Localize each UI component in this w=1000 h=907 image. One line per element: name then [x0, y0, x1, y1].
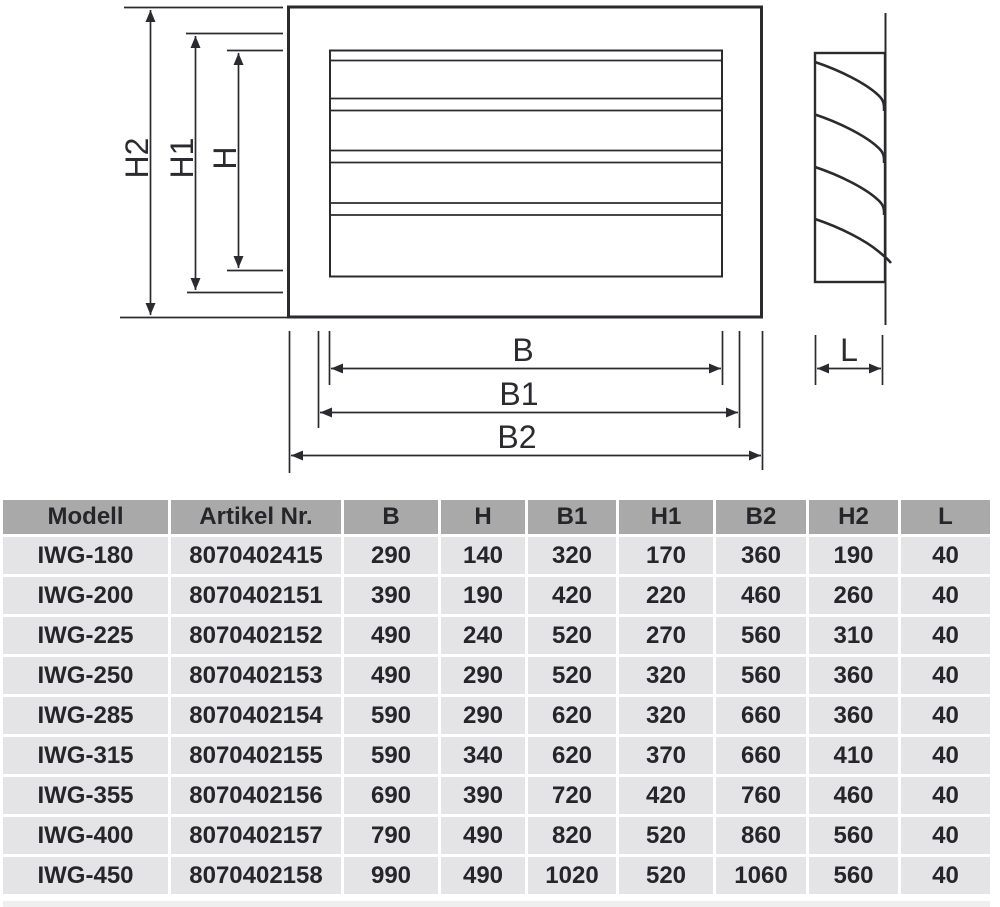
dimension-value-cell: 520: [528, 657, 616, 694]
col-header-l: L: [901, 500, 990, 534]
artikel-nr-cell: 8070402157: [171, 817, 341, 854]
cutoff-next-row: [3, 901, 990, 907]
dimension-value-cell: 390: [344, 577, 438, 614]
artikel-nr-cell: 8070402156: [171, 777, 341, 814]
label-h2: H2: [119, 138, 155, 179]
dimension-value-cell: 360: [716, 537, 806, 574]
col-header-b: B: [344, 500, 438, 534]
dimension-value-cell: 190: [441, 577, 525, 614]
dimension-value-cell: 40: [901, 697, 990, 734]
dimension-value-cell: 170: [619, 537, 713, 574]
dimension-value-cell: 340: [441, 737, 525, 774]
dimension-value-cell: 860: [716, 817, 806, 854]
dimension-value-cell: 990: [344, 857, 438, 894]
dimension-value-cell: 40: [901, 617, 990, 654]
dimension-value-cell: 620: [528, 697, 616, 734]
table-row: IWG-355807040215669039072042076046040: [3, 777, 990, 814]
side-view: [815, 13, 891, 325]
artikel-nr-cell: 8070402152: [171, 617, 341, 654]
dimension-value-cell: 40: [901, 577, 990, 614]
table-row: IWG-400807040215779049082052086056040: [3, 817, 990, 854]
dimension-value-cell: 720: [528, 777, 616, 814]
col-header-h2: H2: [809, 500, 898, 534]
model-cell: IWG-200: [3, 577, 168, 614]
model-cell: IWG-450: [3, 857, 168, 894]
dimension-value-cell: 290: [441, 657, 525, 694]
artikel-nr-cell: 8070402155: [171, 737, 341, 774]
dimension-value-cell: 270: [619, 617, 713, 654]
dimension-value-cell: 590: [344, 697, 438, 734]
table-row: IWG-200807040215139019042022046026040: [3, 577, 990, 614]
dimension-value-cell: 370: [619, 737, 713, 774]
dimension-value-cell: 240: [441, 617, 525, 654]
louver-slats: [330, 61, 722, 216]
artikel-nr-cell: 8070402151: [171, 577, 341, 614]
model-cell: IWG-355: [3, 777, 168, 814]
label-h1: H1: [164, 138, 200, 179]
dimension-value-cell: 490: [441, 817, 525, 854]
table-row: IWG-225807040215249024052027056031040: [3, 617, 990, 654]
dimensions-table-body: IWG-180807040241529014032017036019040IWG…: [3, 537, 990, 894]
dimension-value-cell: 360: [809, 657, 898, 694]
dimension-value-cell: 290: [441, 697, 525, 734]
dimension-value-cell: 220: [619, 577, 713, 614]
dimension-value-cell: 420: [619, 777, 713, 814]
dimension-value-cell: 190: [809, 537, 898, 574]
table-row: IWG-45080704021589904901020520106056040: [3, 857, 990, 894]
dimension-value-cell: 40: [901, 737, 990, 774]
artikel-nr-cell: 8070402153: [171, 657, 341, 694]
dimension-value-cell: 460: [716, 577, 806, 614]
table-row: IWG-250807040215349029052032056036040: [3, 657, 990, 694]
dimension-value-cell: 40: [901, 857, 990, 894]
louver-area: [330, 51, 722, 277]
dimension-value-cell: 1020: [528, 857, 616, 894]
dimension-value-cell: 560: [809, 857, 898, 894]
dimension-value-cell: 40: [901, 817, 990, 854]
dimension-value-cell: 410: [809, 737, 898, 774]
dimension-value-cell: 790: [344, 817, 438, 854]
col-header-h: H: [441, 500, 525, 534]
dimension-value-cell: 460: [809, 777, 898, 814]
dimension-value-cell: 490: [344, 617, 438, 654]
model-cell: IWG-285: [3, 697, 168, 734]
col-header-b2: B2: [716, 500, 806, 534]
dimension-value-cell: 140: [441, 537, 525, 574]
dimension-value-cell: 660: [716, 737, 806, 774]
col-header-b1: B1: [528, 500, 616, 534]
label-b1: B1: [499, 376, 538, 412]
table-header-row: Modell Artikel Nr. B H B1 H1 B2 H2 L: [3, 500, 990, 534]
label-b: B: [512, 332, 533, 368]
artikel-nr-cell: 8070402415: [171, 537, 341, 574]
dimension-value-cell: 560: [809, 817, 898, 854]
dimension-value-cell: 590: [344, 737, 438, 774]
label-b2: B2: [497, 419, 536, 455]
dimension-value-cell: 360: [809, 697, 898, 734]
model-cell: IWG-180: [3, 537, 168, 574]
table-row: IWG-315807040215559034062037066041040: [3, 737, 990, 774]
dimension-value-cell: 290: [344, 537, 438, 574]
dimension-value-cell: 760: [716, 777, 806, 814]
model-cell: IWG-250: [3, 657, 168, 694]
dimension-value-cell: 560: [716, 617, 806, 654]
dimension-value-cell: 320: [619, 657, 713, 694]
model-cell: IWG-400: [3, 817, 168, 854]
dimension-value-cell: 560: [716, 657, 806, 694]
dimension-value-cell: 820: [528, 817, 616, 854]
dimension-value-cell: 690: [344, 777, 438, 814]
dimension-value-cell: 310: [809, 617, 898, 654]
col-header-modell: Modell: [3, 500, 168, 534]
label-l: L: [840, 332, 858, 368]
dimension-value-cell: 40: [901, 537, 990, 574]
louver-profiles: [815, 62, 891, 263]
dimension-value-cell: 320: [619, 697, 713, 734]
dimension-value-cell: 490: [441, 857, 525, 894]
label-h: H: [207, 146, 243, 169]
grille-technical-drawing: H2 H1 H B B1 B2 L: [0, 0, 1000, 497]
dimension-value-cell: 660: [716, 697, 806, 734]
dimension-value-cell: 620: [528, 737, 616, 774]
dimension-value-cell: 520: [619, 857, 713, 894]
artikel-nr-cell: 8070402158: [171, 857, 341, 894]
model-cell: IWG-315: [3, 737, 168, 774]
dimension-value-cell: 320: [528, 537, 616, 574]
dimensions-table: Modell Artikel Nr. B H B1 H1 B2 H2 L IWG…: [0, 497, 993, 897]
dimension-value-cell: 40: [901, 657, 990, 694]
col-header-artikel-nr: Artikel Nr.: [171, 500, 341, 534]
front-view: [289, 7, 762, 317]
dimension-value-cell: 520: [528, 617, 616, 654]
col-header-h1: H1: [619, 500, 713, 534]
dimension-value-cell: 490: [344, 657, 438, 694]
artikel-nr-cell: 8070402154: [171, 697, 341, 734]
table-row: IWG-285807040215459029062032066036040: [3, 697, 990, 734]
dimension-value-cell: 390: [441, 777, 525, 814]
dimension-value-cell: 420: [528, 577, 616, 614]
datasheet-page: { "diagram": { "line_color": "#2b2b2f", …: [0, 0, 1000, 907]
dimension-value-cell: 520: [619, 817, 713, 854]
dimension-value-cell: 40: [901, 777, 990, 814]
model-cell: IWG-225: [3, 617, 168, 654]
dimension-value-cell: 260: [809, 577, 898, 614]
dimension-value-cell: 1060: [716, 857, 806, 894]
table-row: IWG-180807040241529014032017036019040: [3, 537, 990, 574]
